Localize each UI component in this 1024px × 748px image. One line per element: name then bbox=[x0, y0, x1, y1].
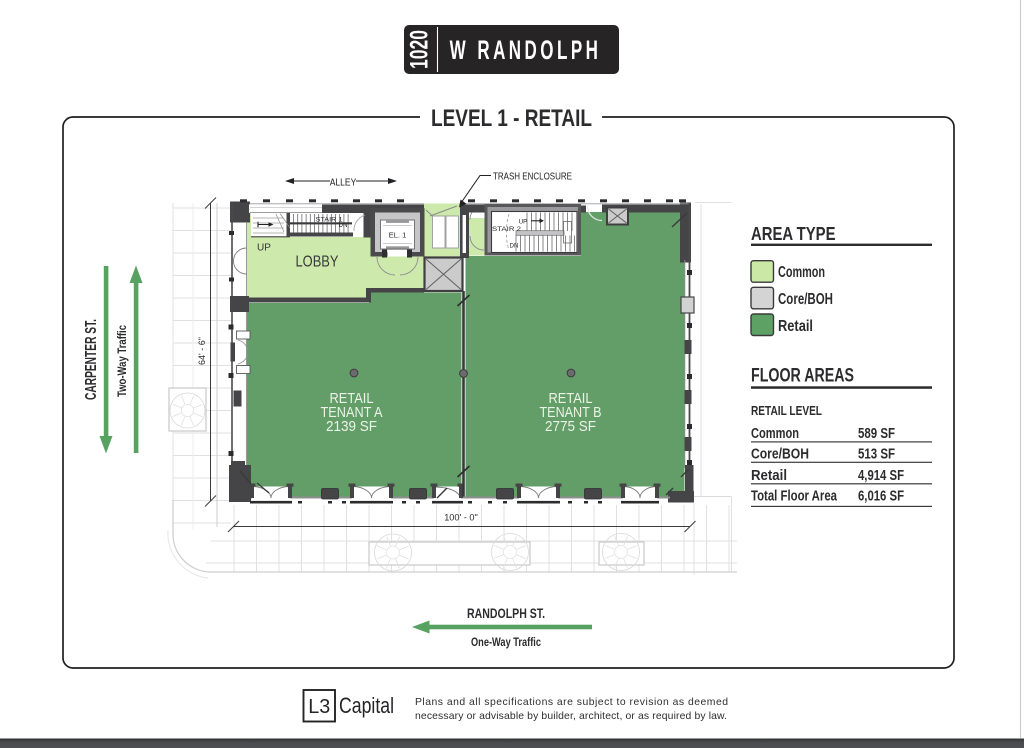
svg-text:UP: UP bbox=[257, 243, 271, 254]
svg-text:CARPENTER ST.: CARPENTER ST. bbox=[83, 319, 100, 400]
svg-text:L3: L3 bbox=[308, 696, 330, 718]
svg-text:DN: DN bbox=[510, 243, 519, 250]
svg-text:RANDOLPH ST.: RANDOLPH ST. bbox=[467, 605, 545, 621]
svg-text:2139 SF: 2139 SF bbox=[326, 419, 377, 435]
svg-text:Retail: Retail bbox=[751, 468, 787, 484]
svg-text:UP: UP bbox=[519, 219, 528, 226]
svg-text:W RANDOLPH: W RANDOLPH bbox=[450, 35, 602, 65]
svg-text:LEVEL 1 - RETAIL: LEVEL 1 - RETAIL bbox=[431, 105, 592, 132]
svg-text:Common: Common bbox=[778, 264, 825, 281]
svg-text:Core/BOH: Core/BOH bbox=[751, 447, 809, 463]
svg-text:6,016 SF: 6,016 SF bbox=[858, 489, 904, 505]
svg-text:necessary or advisable by buil: necessary or advisable by builder, archi… bbox=[415, 711, 727, 722]
svg-text:64' - 6": 64' - 6" bbox=[197, 337, 207, 365]
svg-text:Common: Common bbox=[751, 426, 799, 442]
svg-text:RETAIL LEVEL: RETAIL LEVEL bbox=[751, 404, 822, 418]
svg-text:STAIR 2: STAIR 2 bbox=[492, 226, 522, 233]
svg-text:One-Way Traffic: One-Way Traffic bbox=[471, 637, 541, 649]
svg-text:513 SF: 513 SF bbox=[858, 447, 895, 463]
svg-text:ALLEY: ALLEY bbox=[330, 177, 357, 189]
svg-text:Plans and all specifications a: Plans and all specifications are subject… bbox=[415, 697, 728, 708]
svg-text:100' - 0": 100' - 0" bbox=[444, 513, 478, 523]
svg-text:Core/BOH: Core/BOH bbox=[778, 291, 833, 308]
svg-text:LOBBY: LOBBY bbox=[296, 254, 339, 271]
svg-text:EL. 1: EL. 1 bbox=[389, 231, 407, 240]
svg-text:2775 SF: 2775 SF bbox=[545, 419, 596, 435]
svg-text:FLOOR AREAS: FLOOR AREAS bbox=[751, 366, 854, 387]
svg-text:DN: DN bbox=[339, 222, 348, 229]
svg-text:589 SF: 589 SF bbox=[858, 426, 895, 442]
svg-text:Retail: Retail bbox=[778, 318, 813, 335]
svg-text:Total Floor Area: Total Floor Area bbox=[751, 489, 838, 505]
svg-text:AREA TYPE: AREA TYPE bbox=[751, 224, 836, 244]
svg-text:1020: 1020 bbox=[406, 30, 434, 69]
svg-text:4,914 SF: 4,914 SF bbox=[858, 468, 904, 484]
svg-text:Two-Way Traffic: Two-Way Traffic bbox=[117, 325, 129, 397]
svg-text:TRASH ENCLOSURE: TRASH ENCLOSURE bbox=[493, 172, 572, 183]
svg-text:Capital: Capital bbox=[339, 693, 394, 718]
